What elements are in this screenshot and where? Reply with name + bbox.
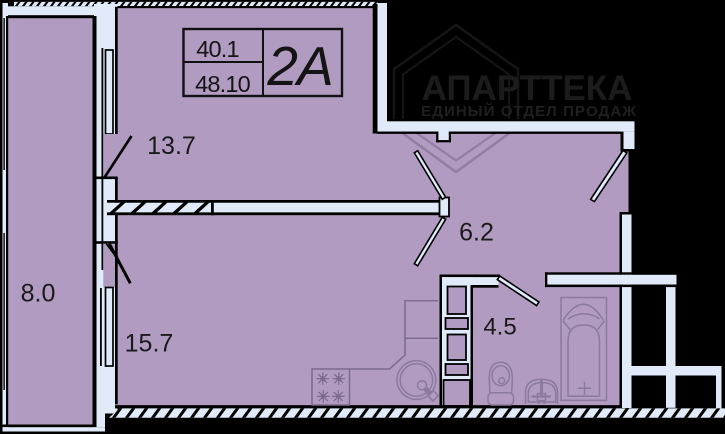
svg-text:8.0: 8.0 <box>21 280 56 308</box>
svg-text:13.7: 13.7 <box>147 132 196 160</box>
svg-text:48.10: 48.10 <box>195 71 251 97</box>
svg-text:4.5: 4.5 <box>483 314 516 341</box>
svg-text:6.2: 6.2 <box>459 218 494 246</box>
svg-text:2A: 2A <box>266 35 332 97</box>
svg-text:40.1: 40.1 <box>196 36 239 62</box>
svg-text:15.7: 15.7 <box>125 330 174 358</box>
svg-text:ЕДИНЫЙ ОТДЕЛ ПРОДАЖ: ЕДИНЫЙ ОТДЕЛ ПРОДАЖ <box>421 102 637 120</box>
